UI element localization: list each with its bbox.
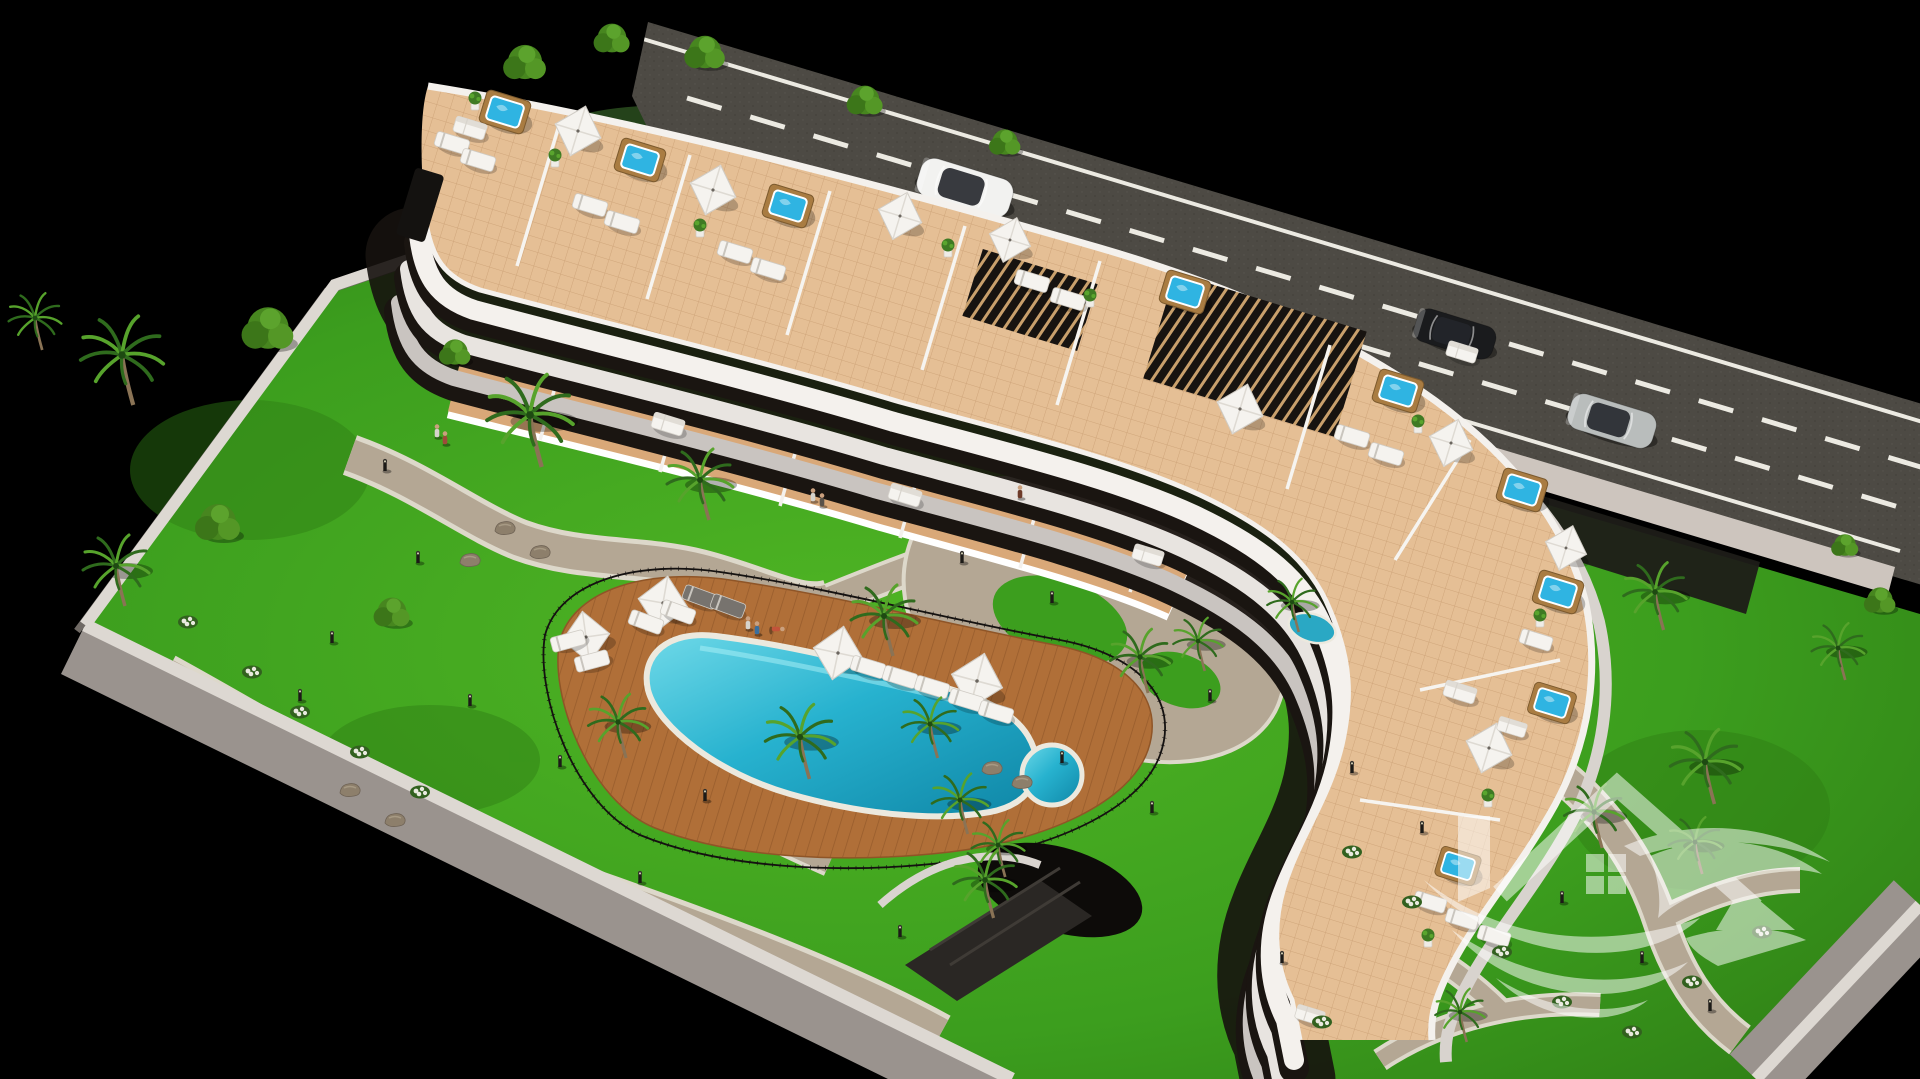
logo-chimney <box>1458 816 1490 902</box>
flower-bush <box>410 786 430 799</box>
architectural-render-scene <box>0 0 1920 1079</box>
spa-pool <box>1022 745 1082 805</box>
render-canvas <box>0 0 1920 1079</box>
flower-bush <box>350 746 370 759</box>
flower-bush <box>1622 1026 1642 1039</box>
flower-bush <box>1312 1016 1332 1029</box>
flower-bush <box>1402 896 1422 909</box>
flower-bush <box>1342 846 1362 859</box>
flower-bush <box>242 666 262 679</box>
flower-bush <box>178 616 198 629</box>
flower-bush <box>1682 976 1702 989</box>
flower-bush <box>290 706 310 719</box>
